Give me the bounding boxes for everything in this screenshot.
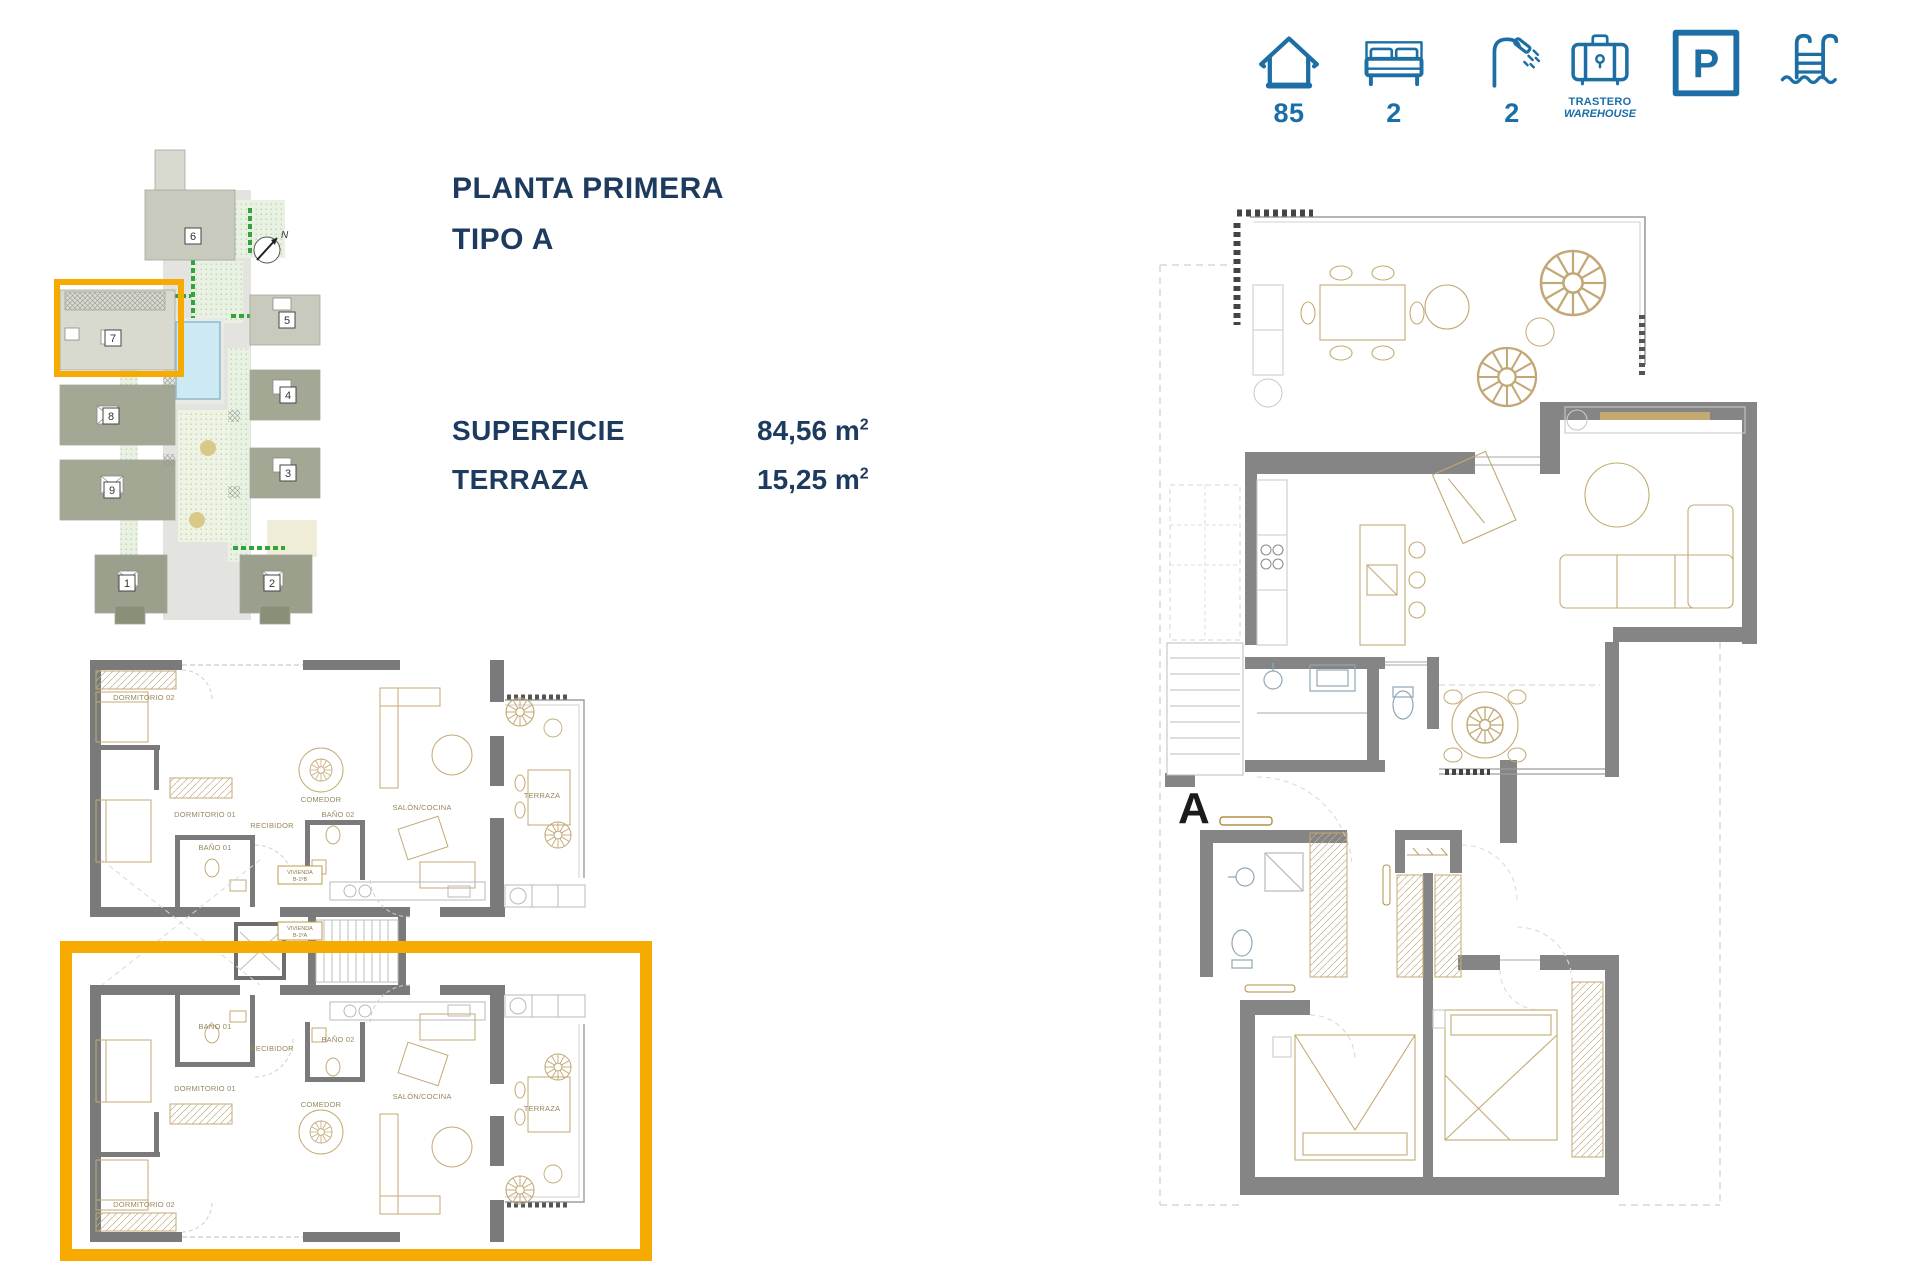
- feature-parking: P: [1668, 28, 1744, 98]
- parking-letter: P: [1693, 42, 1719, 86]
- vivienda-tag-bottom: VIVIENDA B-1ºA: [278, 922, 322, 940]
- house-count: 85: [1273, 98, 1304, 129]
- vivienda-tag-top: VIVIENDA B-1ºB: [278, 866, 322, 884]
- warehouse-icon: [1564, 28, 1636, 90]
- room-label: BAÑO 02: [321, 1035, 354, 1044]
- kitchen: [1257, 480, 1425, 645]
- room-label: SALÓN/COCINA: [392, 1092, 451, 1101]
- feature-bedrooms: 2: [1352, 28, 1436, 129]
- title-line2: TIPO A: [452, 223, 724, 257]
- room-label: RECIBIDOR: [250, 1044, 294, 1053]
- spec-value: 84,56 m2: [757, 415, 869, 447]
- room-label: DORMITORIO 01: [174, 1084, 236, 1093]
- tag-line1: VIVIENDA: [287, 870, 313, 876]
- spec-row-terraza: TERRAZA 15,25 m2: [452, 455, 869, 504]
- floorplan-sheet: 85 2 2 TRASTERO WAREHOUSE: [0, 0, 1920, 1280]
- room-label: BAÑO 01: [198, 843, 231, 852]
- living-room: [1432, 407, 1745, 608]
- spec-value: 15,25 m2: [757, 464, 869, 496]
- feature-warehouse: TRASTERO WAREHOUSE: [1552, 28, 1648, 120]
- terrace-side: [1439, 685, 1605, 774]
- room-label: BAÑO 02: [321, 810, 354, 819]
- room-label: TERRAZA: [524, 1104, 560, 1113]
- terrace-top: [1237, 213, 1645, 407]
- room-label: DORMITORIO 01: [174, 810, 236, 819]
- building-number: 8: [108, 411, 114, 423]
- building-number: 1: [124, 578, 130, 590]
- building-number: 2: [269, 578, 275, 590]
- shower-icon: [1481, 28, 1543, 94]
- room-label: TERRAZA: [524, 791, 560, 800]
- warehouse-label-en: WAREHOUSE: [1564, 108, 1636, 120]
- building-number: 5: [284, 315, 290, 327]
- warehouse-label-es: TRASTERO: [1569, 96, 1632, 108]
- surface-specs: SUPERFICIE 84,56 m2 TERRAZA 15,25 m2: [452, 406, 869, 504]
- title-line1: PLANTA PRIMERA: [452, 172, 724, 206]
- floor-plan-large: A: [1145, 165, 1765, 1245]
- spec-label: TERRAZA: [452, 464, 757, 496]
- pool-icon: [1773, 28, 1849, 94]
- building-number: 7: [110, 333, 116, 345]
- room-label: BAÑO 01: [198, 1022, 231, 1031]
- room-label: SALÓN/COCINA: [392, 803, 451, 812]
- house-icon: [1257, 28, 1321, 94]
- page-title: PLANTA PRIMERA TIPO A: [452, 172, 724, 257]
- building-number: 9: [109, 485, 115, 497]
- unit-letter-label: A: [1178, 784, 1210, 833]
- spec-label: SUPERFICIE: [452, 415, 757, 447]
- feature-bathrooms: 2: [1479, 28, 1545, 129]
- room-label: COMEDOR: [301, 1100, 342, 1109]
- site-plan: 6 7 5 8 4 9 3 1 2 N: [45, 148, 323, 626]
- bed-icon: [1356, 28, 1432, 94]
- bathrooms-count: 2: [1504, 98, 1520, 129]
- tag-line1: VIVIENDA: [287, 926, 313, 932]
- small-plan-unit-bottom: DORMITORIO 02 DORMITORIO 01 BAÑO 01 RECI…: [90, 985, 585, 1242]
- terrace: [505, 995, 585, 1205]
- spec-row-superficie: SUPERFICIE 84,56 m2: [452, 406, 869, 455]
- room-label: DORMITORIO 02: [113, 693, 175, 702]
- small-plan-unit-top: DORMITORIO 02 DORMITORIO 01 BAÑO 01 RECI…: [90, 660, 585, 917]
- building-number: 6: [190, 231, 196, 243]
- room-label: DORMITORIO 02: [113, 1200, 175, 1209]
- room-label: RECIBIDOR: [250, 821, 294, 830]
- stairs: [1167, 485, 1243, 775]
- terrace: [505, 697, 585, 907]
- bathroom-1: [1257, 663, 1413, 719]
- bathroom-2: [1228, 853, 1303, 968]
- feature-house: 85: [1253, 28, 1325, 129]
- building-number: 3: [285, 468, 291, 480]
- compass-north-label: N: [281, 230, 289, 241]
- feature-pool: [1770, 28, 1852, 94]
- entrance: [1220, 777, 1540, 1010]
- floor-plan-small: DORMITORIO 02 DORMITORIO 01 BAÑO 01 RECI…: [50, 650, 660, 1272]
- tag-line2: B-1ºA: [293, 932, 308, 939]
- tag-line2: B-1ºB: [293, 876, 308, 883]
- bedrooms-count: 2: [1386, 98, 1402, 129]
- building-number: 4: [285, 390, 291, 402]
- room-label: COMEDOR: [301, 795, 342, 804]
- parking-icon: P: [1671, 28, 1741, 98]
- walls: [1165, 402, 1757, 1195]
